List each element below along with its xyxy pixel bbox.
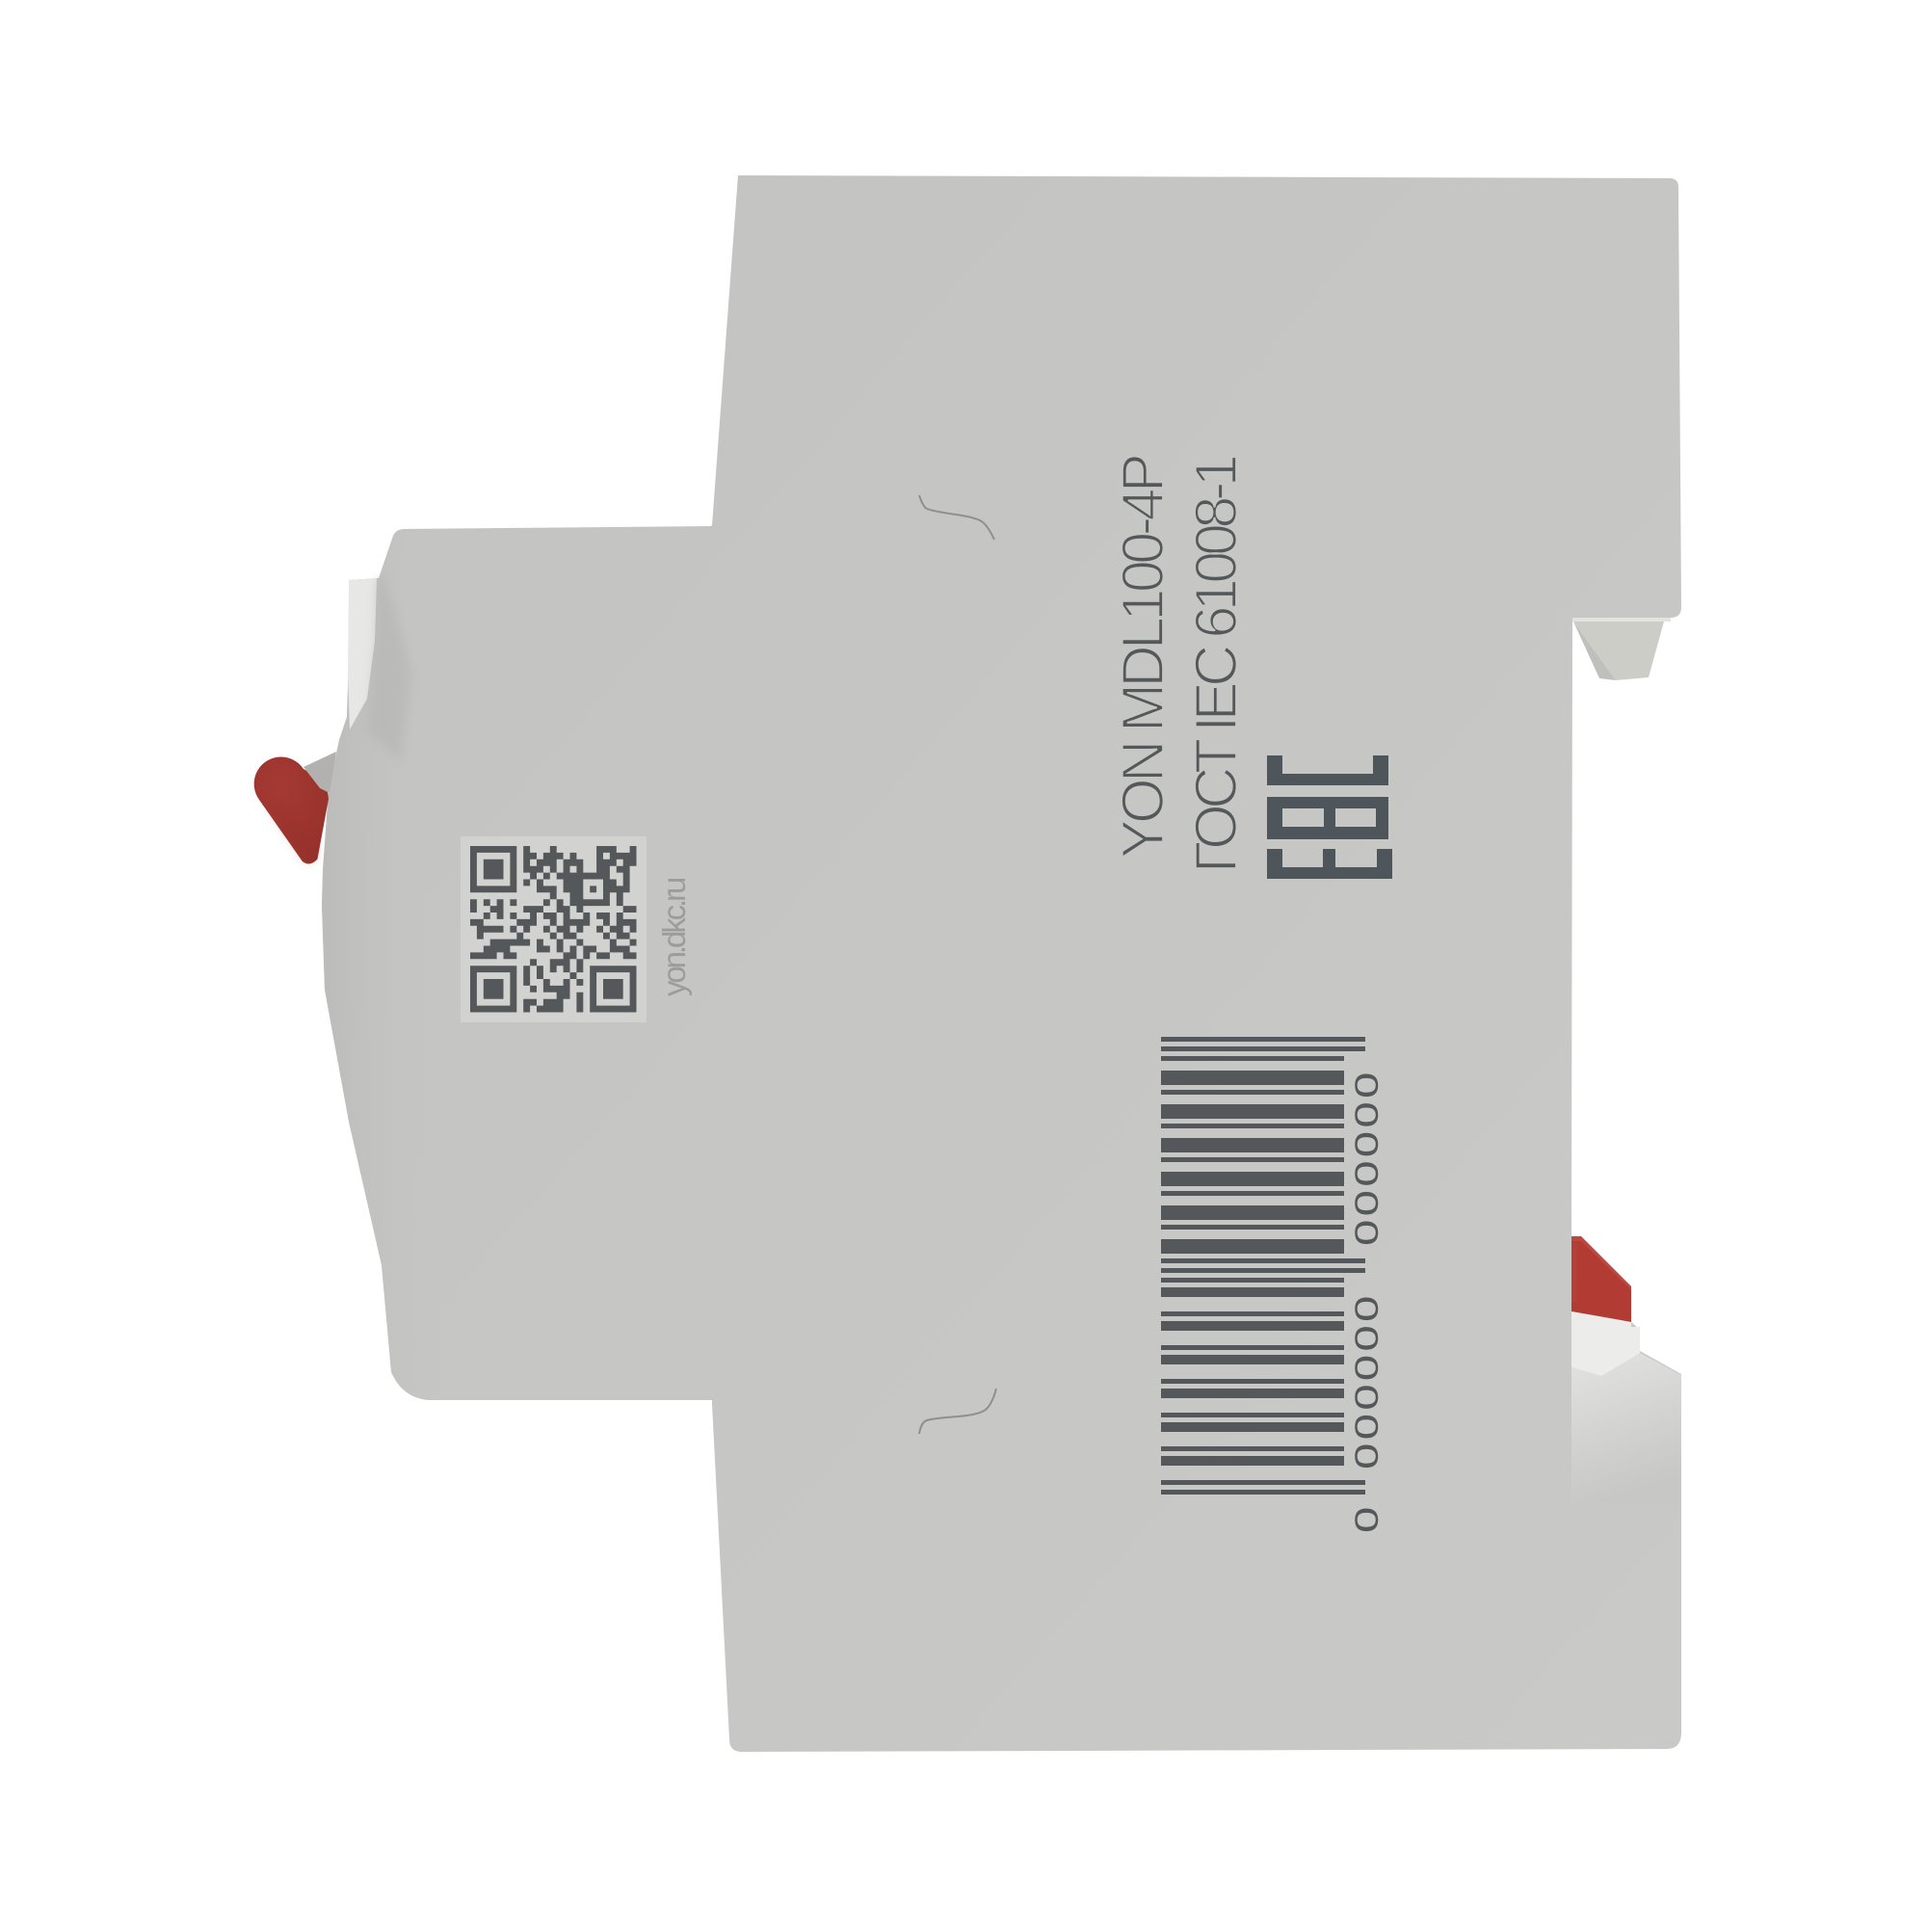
svg-text:YON MDL100-4P: YON MDL100-4P [1110,456,1175,859]
svg-text:000000: 000000 [1348,1292,1385,1469]
svg-text:000000: 000000 [1348,1069,1385,1246]
svg-text:ГОСТ IEC 61008-1: ГОСТ IEC 61008-1 [1183,457,1249,873]
svg-text:yon.dkc.ru: yon.dkc.ru [656,878,692,996]
svg-text:0: 0 [1348,1507,1385,1533]
